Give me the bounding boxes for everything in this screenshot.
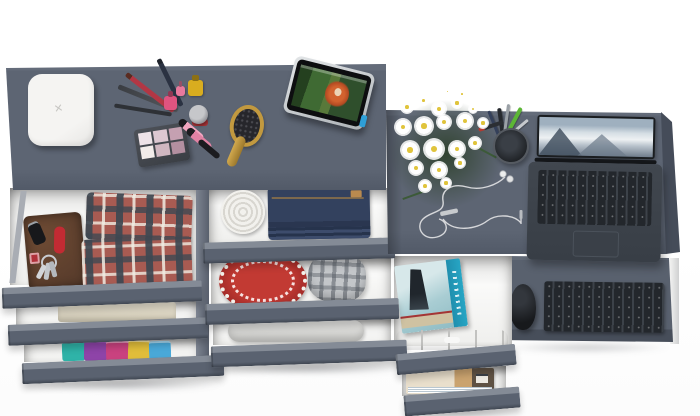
hat-lace-ring <box>231 260 295 302</box>
daisy-flower <box>468 136 482 150</box>
folded-shirt-teal <box>62 341 86 362</box>
hairbrush-handle <box>225 135 247 168</box>
daisy-flower <box>454 157 466 169</box>
swatch <box>155 143 170 157</box>
daisy-flower <box>408 160 424 176</box>
spine-text-marks <box>452 271 461 315</box>
box-logo-glyph: ✕ <box>53 101 64 115</box>
nail-polish-pink <box>164 96 177 110</box>
earbud <box>500 171 506 177</box>
folded-jeans <box>268 186 371 240</box>
earphones <box>410 150 545 245</box>
daisy-flower <box>414 116 434 136</box>
folded-shirt-purple <box>84 340 107 361</box>
daisy-flower <box>451 97 463 109</box>
jeans-stitch <box>272 197 364 199</box>
book-cover-figure <box>403 267 434 312</box>
car-key <box>27 222 47 246</box>
nail-polish-yellow <box>188 80 203 96</box>
book-cover <box>394 260 454 334</box>
makeup-cluster <box>112 78 224 176</box>
daisy-flower <box>448 140 466 158</box>
daisy-flower <box>440 177 452 189</box>
laptop-screen <box>537 115 656 159</box>
earphone-plug <box>520 210 523 219</box>
organizer-item <box>444 337 460 343</box>
daisy-flower <box>423 138 445 160</box>
book-cover-strip <box>400 311 453 329</box>
magazine-label <box>476 374 488 383</box>
key-tag <box>29 252 40 264</box>
daisy-flower <box>400 100 414 114</box>
swatch <box>168 127 183 141</box>
laptop-trackpad <box>573 231 620 258</box>
plaid-shirt <box>85 192 193 243</box>
daisy-flower <box>418 179 432 193</box>
hairbrush-head <box>226 102 267 149</box>
swatch <box>140 145 155 159</box>
daisy-flower <box>394 118 412 136</box>
desktop-keyboard <box>544 281 665 333</box>
daisy-flower <box>418 95 429 106</box>
earphone-cable <box>420 177 521 238</box>
keyboard-tray-group <box>494 254 682 346</box>
mouse <box>510 284 536 330</box>
leather-wallet <box>23 212 87 291</box>
daisy-flower <box>456 112 474 130</box>
earbud <box>507 176 513 182</box>
laptop <box>526 113 663 264</box>
daisy-bud <box>459 91 465 97</box>
daisy-flower <box>436 114 452 130</box>
scene-render: ✕ <box>0 0 700 416</box>
cream-jar <box>189 105 208 124</box>
jewelry-box: ✕ <box>28 74 94 146</box>
teal-book <box>394 258 468 334</box>
swatch <box>138 132 153 146</box>
nail-polish-light-pink <box>176 86 185 96</box>
pocket-knife <box>54 226 65 253</box>
eyeshadow-palette <box>133 122 190 168</box>
swatch <box>153 129 168 143</box>
daisy-bud <box>444 88 451 95</box>
laptop-wallpaper <box>539 117 654 157</box>
daisy-flower <box>400 140 420 160</box>
daisy-flower <box>477 117 489 129</box>
laptop-body <box>526 162 662 263</box>
jeans-patch <box>351 190 362 197</box>
swatch <box>170 141 185 155</box>
eyeshadow-swatches <box>138 127 186 160</box>
laptop-keyboard <box>537 170 652 226</box>
earphone-remote <box>440 208 459 216</box>
